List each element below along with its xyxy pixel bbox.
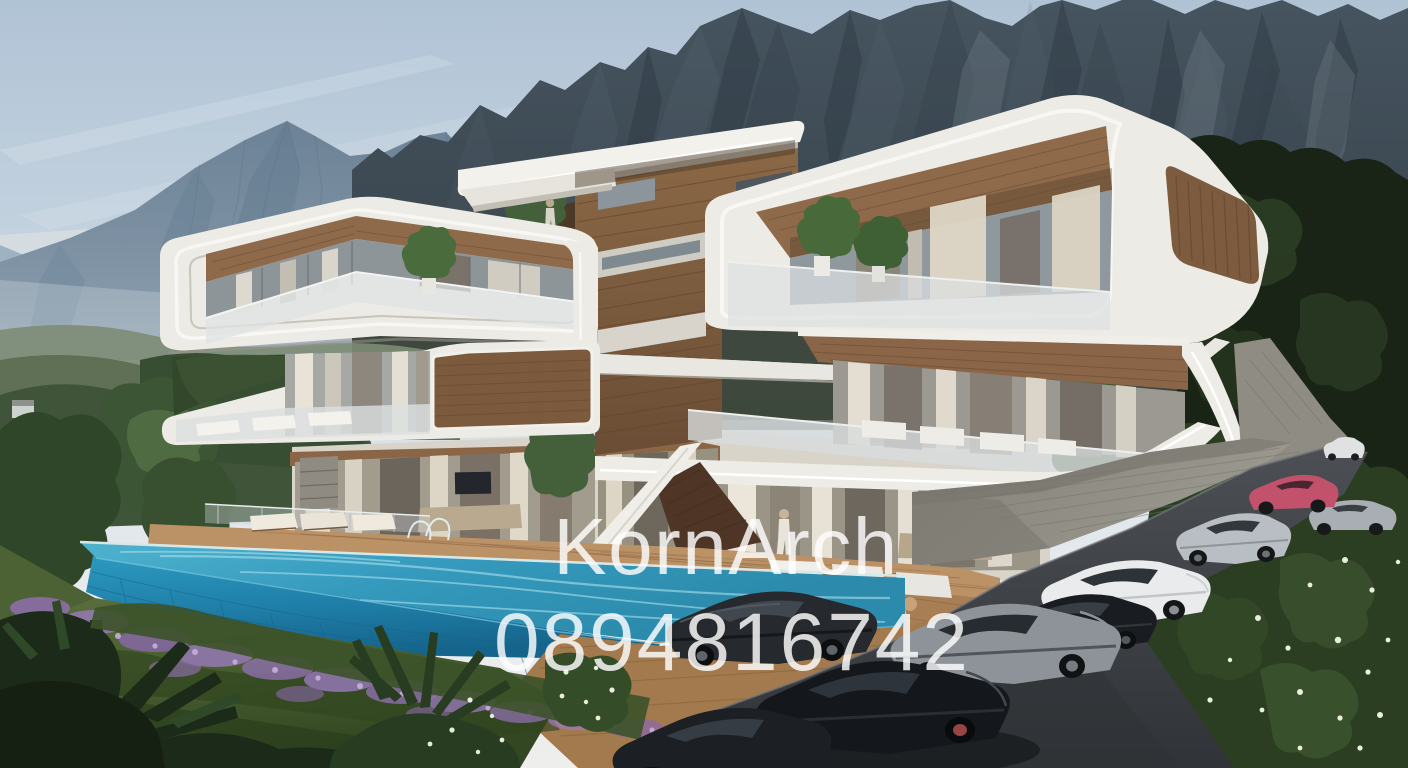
svg-text:0894816742: 0894816742 <box>494 597 970 688</box>
svg-text:KornArch: KornArch <box>553 502 898 591</box>
